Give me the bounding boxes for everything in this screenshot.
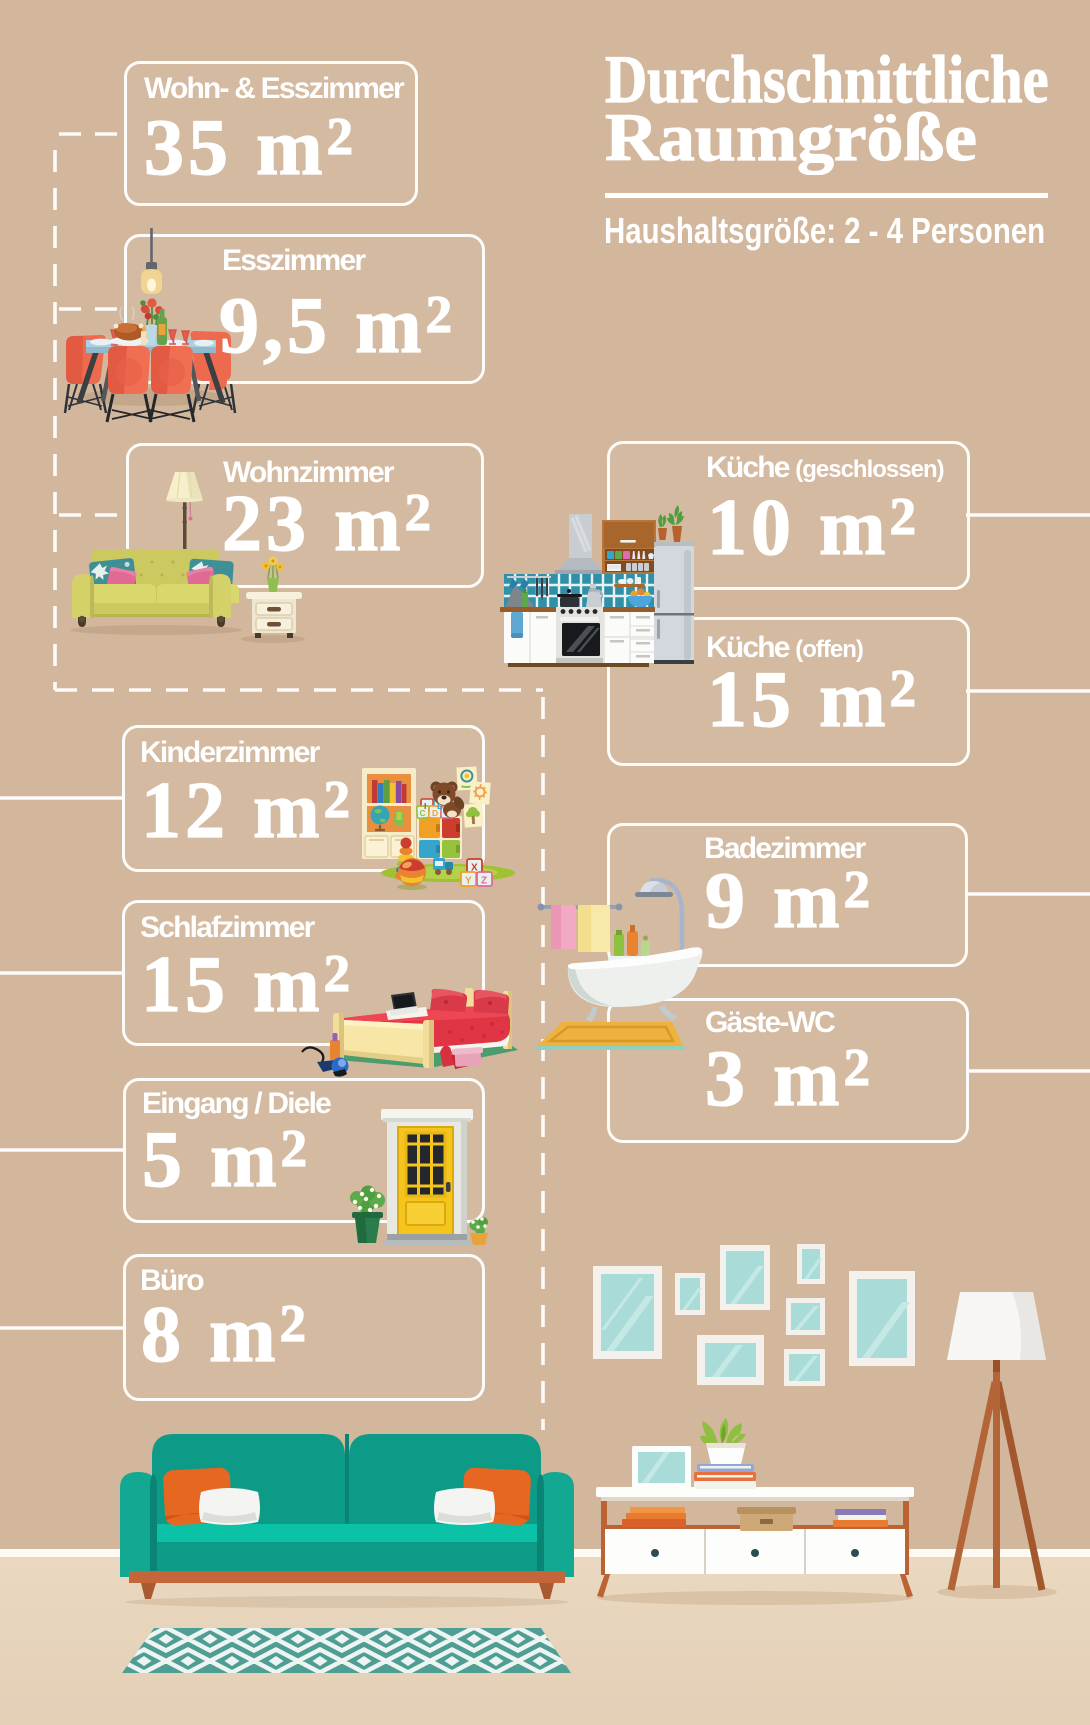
svg-text:Z: Z — [481, 876, 487, 887]
svg-text:X: X — [471, 863, 478, 874]
svg-text:Y: Y — [465, 876, 472, 887]
svg-text:C: C — [420, 808, 426, 818]
svg-text:D: D — [432, 808, 438, 818]
